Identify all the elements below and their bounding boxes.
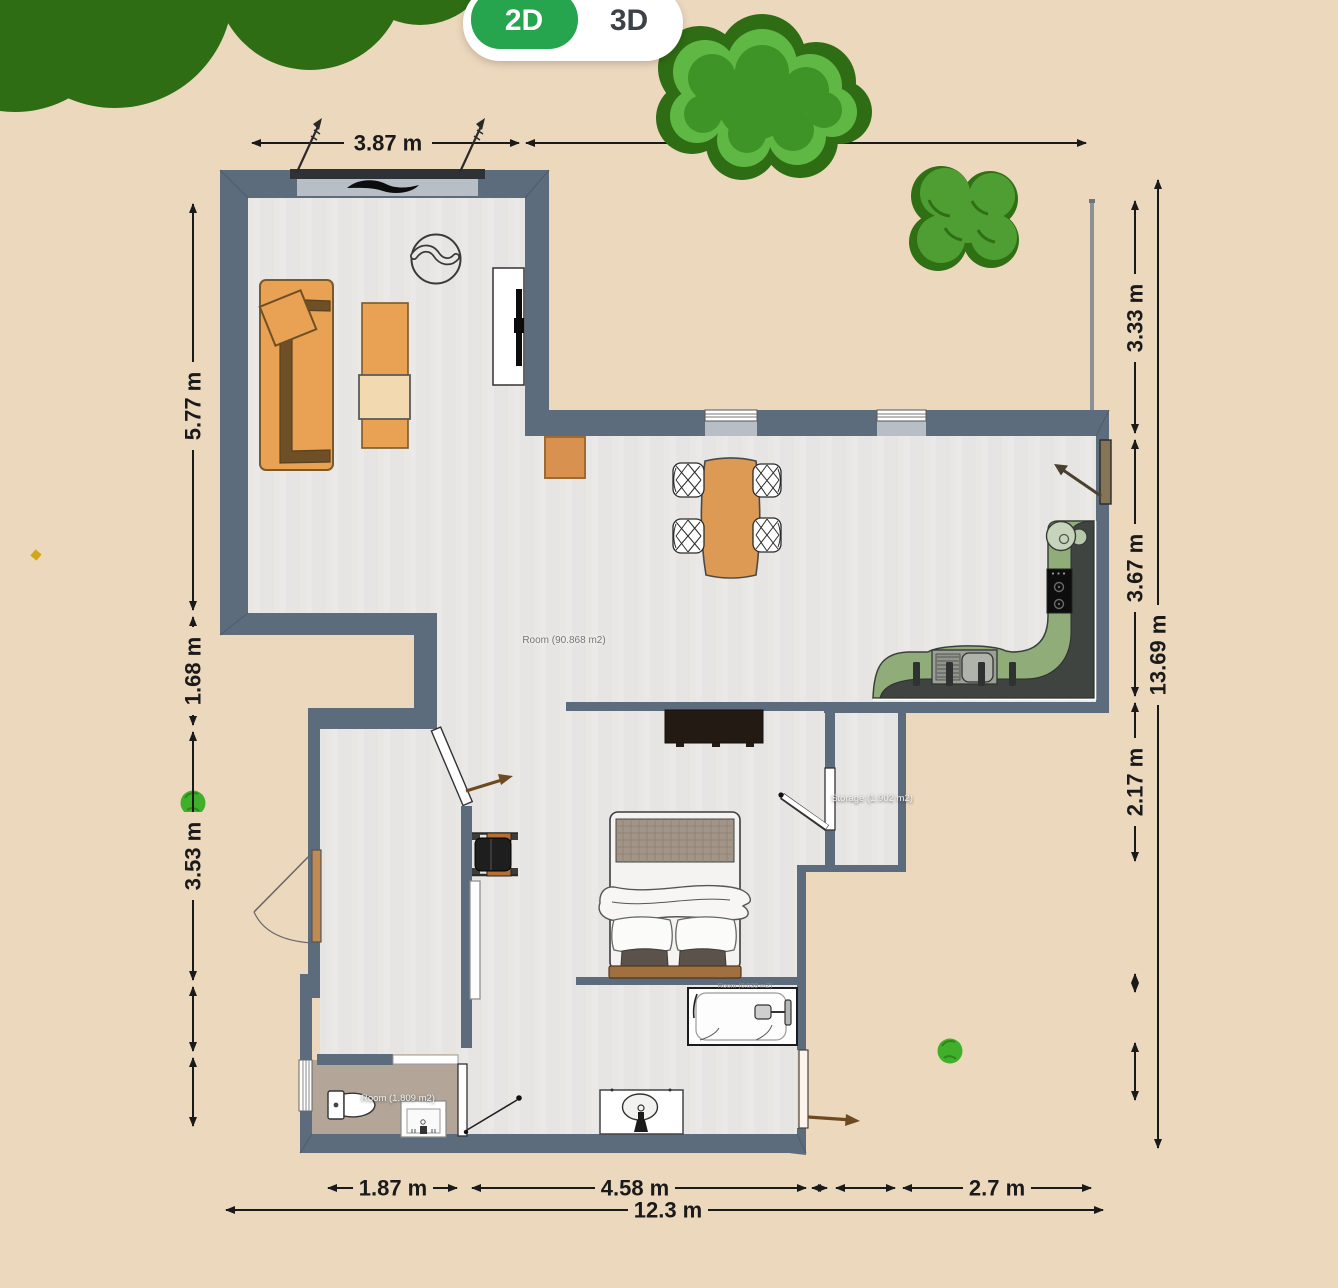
- svg-text:5.77 m: 5.77 m: [181, 372, 206, 441]
- svg-text:Room (0.039 m2): Room (0.039 m2): [718, 983, 772, 990]
- svg-text:Room (90.868 m2): Room (90.868 m2): [522, 635, 605, 646]
- svg-text:3.33 m: 3.33 m: [1123, 284, 1148, 353]
- svg-text:2D: 2D: [505, 4, 543, 37]
- svg-text:2.17 m: 2.17 m: [1123, 748, 1148, 817]
- svg-text:13.69 m: 13.69 m: [1146, 615, 1171, 696]
- svg-text:3.53 m: 3.53 m: [181, 822, 206, 891]
- svg-text:12.3 m: 12.3 m: [634, 1198, 703, 1223]
- svg-text:3D: 3D: [610, 4, 648, 37]
- svg-text:1.68 m: 1.68 m: [181, 637, 206, 706]
- svg-text:Storage (1.902 m2): Storage (1.902 m2): [831, 793, 913, 804]
- svg-text:3.67 m: 3.67 m: [1123, 534, 1148, 603]
- svg-text:1.87 m: 1.87 m: [359, 1176, 428, 1201]
- svg-text:3.87 m: 3.87 m: [354, 131, 423, 156]
- svg-text:Room (1.809 m2): Room (1.809 m2): [361, 1093, 435, 1104]
- svg-text:2.7 m: 2.7 m: [969, 1176, 1025, 1201]
